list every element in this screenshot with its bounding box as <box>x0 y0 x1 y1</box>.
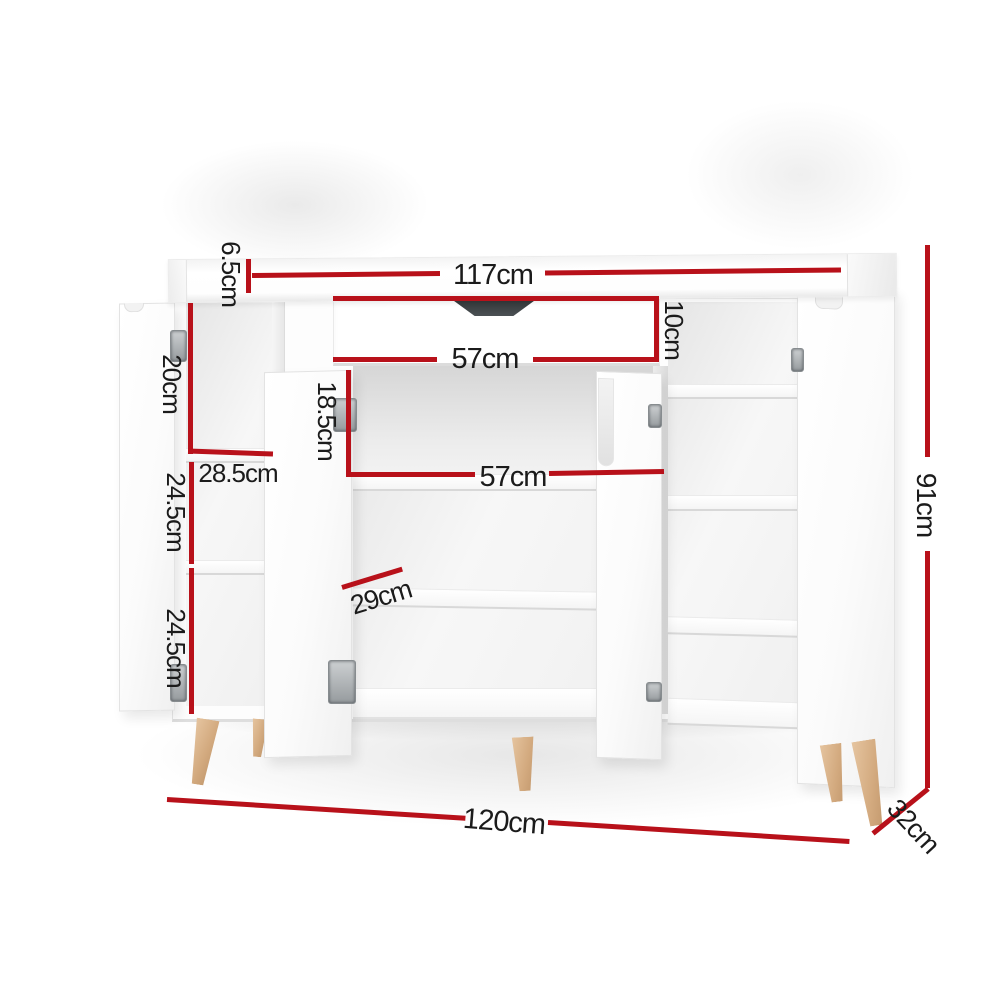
dim-line-drawer-bottom-left <box>333 357 437 362</box>
dim-label-overall-width: 120cm <box>445 803 563 841</box>
dim-label-drawer-height: 10cm <box>661 287 687 373</box>
dim-line-top-thickness <box>246 259 251 293</box>
dim-label-overall-height: 91cm <box>912 459 940 551</box>
hinge <box>791 348 804 372</box>
dim-label-middle-top-compartment: 18.5cm <box>314 368 340 474</box>
dim-label-middle-inner-width: 57cm <box>465 463 561 492</box>
dim-line-drawer-bottom-right <box>533 357 659 362</box>
hinge <box>648 404 662 428</box>
dim-label-top-width: 117cm <box>441 261 545 290</box>
dim-line-mid-top-vert <box>346 370 351 477</box>
dim-label-left-top-compartment: 20cm <box>159 341 185 427</box>
right-shelf-1 <box>668 384 798 399</box>
dim-label-left-inner-width: 28.5cm <box>185 460 291 486</box>
wall-shadow-right <box>685 100 915 250</box>
dim-line-mid-width-left <box>346 472 475 477</box>
hinge <box>646 682 662 702</box>
dim-label-left-bottom-compartment: 24.5cm <box>163 595 189 701</box>
hinge <box>328 660 356 704</box>
right-shelf-3 <box>668 616 798 637</box>
right-shelf-2 <box>668 495 798 511</box>
shoe-cabinet-dimension-diagram: 6.5cm 117cm 57cm 10cm 20cm 28.5cm 24.5cm… <box>0 0 1000 1000</box>
top-panel-left-end <box>169 260 187 302</box>
left-column-interior <box>186 302 272 706</box>
left-door-handle-notch <box>124 303 144 312</box>
dim-line-drawer-top <box>333 296 658 301</box>
dim-line-height-lower <box>925 551 930 788</box>
left-shelf-lower <box>186 560 272 575</box>
dim-label-top-thickness: 6.5cm <box>218 234 244 314</box>
top-panel-right-end <box>847 254 896 296</box>
wall-shadow-left <box>160 140 430 270</box>
dim-line-height-upper <box>925 245 930 457</box>
dim-label-left-middle-compartment: 24.5cm <box>163 459 189 565</box>
right-door-open <box>797 285 895 788</box>
dim-line-left-top-vert <box>188 303 193 454</box>
middle-right-door-handle-groove <box>598 378 614 467</box>
right-floor <box>668 698 799 730</box>
dim-label-drawer-width: 57cm <box>437 345 533 374</box>
dim-line-width-right <box>548 820 850 844</box>
